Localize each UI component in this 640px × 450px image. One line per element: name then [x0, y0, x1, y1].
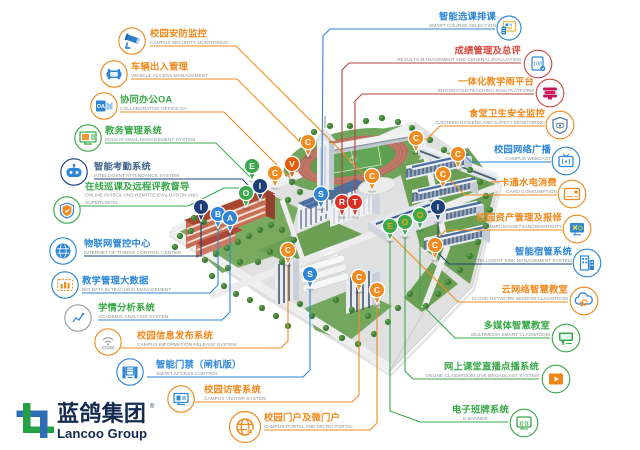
svg-text:校园资产管理及报修: 校园资产管理及报修 — [477, 212, 563, 223]
svg-text:一卡通水电消费: 一卡通水电消费 — [491, 177, 558, 188]
svg-text:一体化教学雨平台: 一体化教学雨平台 — [458, 76, 534, 87]
svg-text:CLOUD NETWORK WISDOM CLASSROOM: CLOUD NETWORK WISDOM CLASSROOM — [472, 296, 568, 302]
svg-text:S: S — [318, 189, 324, 199]
svg-text:I: I — [200, 202, 202, 212]
svg-text:CAMPUS PORTAL AND MICRO PORTAL: CAMPUS PORTAL AND MICRO PORTAL — [264, 424, 353, 430]
svg-text:教学管理大数据: 教学管理大数据 — [81, 275, 149, 286]
svg-text:RESULTS MANAGEMENT AND GENERAL: RESULTS MANAGEMENT AND GENERAL EVALUATIO… — [397, 57, 521, 63]
svg-text:校园访客系统: 校园访客系统 — [204, 384, 261, 395]
svg-text:教务管理系统: 教务管理系统 — [104, 125, 162, 136]
svg-text:V: V — [289, 159, 295, 169]
svg-text:学情分析系统: 学情分析系统 — [98, 302, 155, 313]
svg-text:食堂卫生安全监控: 食堂卫生安全监控 — [468, 108, 545, 119]
svg-text:INTEGRATED TEACHING RAIN PLATF: INTEGRATED TEACHING RAIN PLATFORM — [438, 88, 534, 94]
svg-text:CAMPUS VISITOR SYSTEM: CAMPUS VISITOR SYSTEM — [204, 396, 266, 402]
svg-text:协同办公OA: 协同办公OA — [120, 94, 172, 105]
svg-text:CANTEEN HYGIENE AND SAFETY MON: CANTEEN HYGIENE AND SAFETY MONITORING — [436, 120, 546, 126]
svg-text:Lancoo Group: Lancoo Group — [57, 426, 147, 441]
svg-text:CARD CONSUMPTION: CARD CONSUMPTION — [506, 189, 557, 195]
svg-text:SMART COURSE SELECTION: SMART COURSE SELECTION — [429, 23, 497, 29]
svg-text:OA: OA — [97, 104, 105, 110]
svg-text:网上课堂直播点播系统: 网上课堂直播点播系统 — [444, 361, 539, 372]
svg-text:智能宿管系统: 智能宿管系统 — [515, 246, 572, 257]
svg-text:校园信息发布系统: 校园信息发布系统 — [137, 330, 213, 341]
svg-text:蓝鸽集团: 蓝鸽集团 — [57, 401, 146, 426]
svg-text:®: ® — [150, 403, 155, 410]
svg-text:ONLINE CLASSROOM LIVE BROADCAS: ONLINE CLASSROOM LIVE BROADCAST SYSTEM — [425, 373, 539, 379]
svg-text:多媒体智慧教室: 多媒体智慧教室 — [484, 320, 550, 331]
svg-text:COLLABORATIVE OFFICE OA: COLLABORATIVE OFFICE OA — [120, 106, 188, 112]
svg-text:云网络智慧教室: 云网络智慧教室 — [502, 284, 568, 295]
svg-text:CAMPUS INFORMATION RELEASE SYS: CAMPUS INFORMATION RELEASE SYSTEM — [137, 342, 237, 348]
svg-text:C: C — [455, 149, 461, 159]
svg-text:I: I — [437, 202, 439, 212]
svg-text:物联网管控中心: 物联网管控中心 — [84, 238, 151, 249]
svg-text:SMART ACCESS CONTROL: SMART ACCESS CONTROL — [156, 371, 219, 377]
svg-text:CAMPUSASSETSANDWARRANTY: CAMPUSASSETSANDWARRANTY — [485, 224, 563, 230]
svg-text:A: A — [227, 213, 233, 223]
svg-text:C: C — [285, 245, 291, 255]
svg-text:C: C — [305, 137, 311, 147]
svg-text:INTELLIGENT ATTENDANCE SYSTEM: INTELLIGENT ATTENDANCE SYSTEM — [94, 173, 179, 179]
svg-text:C: C — [369, 171, 375, 181]
svg-text:T: T — [352, 197, 358, 207]
svg-text:智能选课排课: 智能选课排课 — [439, 11, 496, 22]
svg-text:BIG DATA IN TEACHING MANAGEMEN: BIG DATA IN TEACHING MANAGEMENT — [82, 287, 171, 293]
svg-text:INTERNET OF THINGS CONTROL CEN: INTERNET OF THINGS CONTROL CENTER — [84, 250, 181, 256]
svg-text:ONLINE PATROL AND REMOTE EVALU: ONLINE PATROL AND REMOTE EVALUATION AND — [85, 193, 198, 199]
svg-text:INTELLIGENT SINK MANAGEMENT SY: INTELLIGENT SINK MANAGEMENT SYSTEM — [472, 258, 572, 264]
svg-text:校园安防监控: 校园安防监控 — [150, 28, 207, 39]
svg-text:R: R — [339, 197, 346, 207]
svg-text:CAMPUS WEBCAST: CAMPUS WEBCAST — [505, 156, 551, 162]
svg-text:E: E — [387, 221, 393, 231]
svg-text:车辆出入管理: 车辆出入管理 — [131, 61, 188, 72]
svg-text:校园门户及微门户: 校园门户及微门户 — [264, 412, 340, 423]
svg-text:成绩管理及总评: 成绩管理及总评 — [455, 45, 522, 56]
svg-text:在线巡课及远程评教督导: 在线巡课及远程评教督导 — [85, 180, 189, 191]
svg-text:SUPERVISION: SUPERVISION — [85, 200, 118, 206]
svg-text:E-BANNER: E-BANNER — [463, 416, 488, 422]
svg-text:C: C — [272, 168, 278, 178]
svg-text:E: E — [249, 161, 255, 171]
svg-text:B: B — [215, 209, 221, 219]
svg-text:C: C — [356, 272, 362, 282]
svg-text:CAMPUS SECURITY MONITORING: CAMPUS SECURITY MONITORING — [150, 40, 229, 46]
svg-text:O: O — [243, 188, 250, 198]
svg-text:((·)): ((·)) — [520, 421, 529, 427]
svg-text:I: I — [259, 181, 261, 191]
svg-text:VEHICLE ACCESS MANAGEMENT: VEHICLE ACCESS MANAGEMENT — [131, 73, 208, 79]
svg-text:电子班牌系统: 电子班牌系统 — [452, 404, 509, 415]
svg-text:C: C — [374, 285, 380, 295]
svg-text:C: C — [413, 133, 419, 143]
svg-text:C: C — [440, 169, 446, 179]
svg-text:智能考勤系统: 智能考勤系统 — [94, 161, 151, 172]
svg-text:校园网络广播: 校园网络广播 — [494, 144, 551, 155]
svg-text:S: S — [307, 269, 313, 279]
svg-text:智能门禁（闸机版）: 智能门禁（闸机版） — [156, 359, 241, 370]
svg-text:ACADEMIC ANALYSIS SYSTEM: ACADEMIC ANALYSIS SYSTEM — [98, 314, 169, 320]
svg-text:MULTIMEDIA SMART CLASSROOM: MULTIMEDIA SMART CLASSROOM — [471, 332, 550, 338]
svg-text:EDUCATIONAL MANAGEMENT SYSTEM: EDUCATIONAL MANAGEMENT SYSTEM — [105, 137, 195, 143]
svg-text:C: C — [432, 240, 438, 250]
svg-text:O: O — [402, 217, 409, 227]
svg-text:O: O — [417, 210, 424, 220]
